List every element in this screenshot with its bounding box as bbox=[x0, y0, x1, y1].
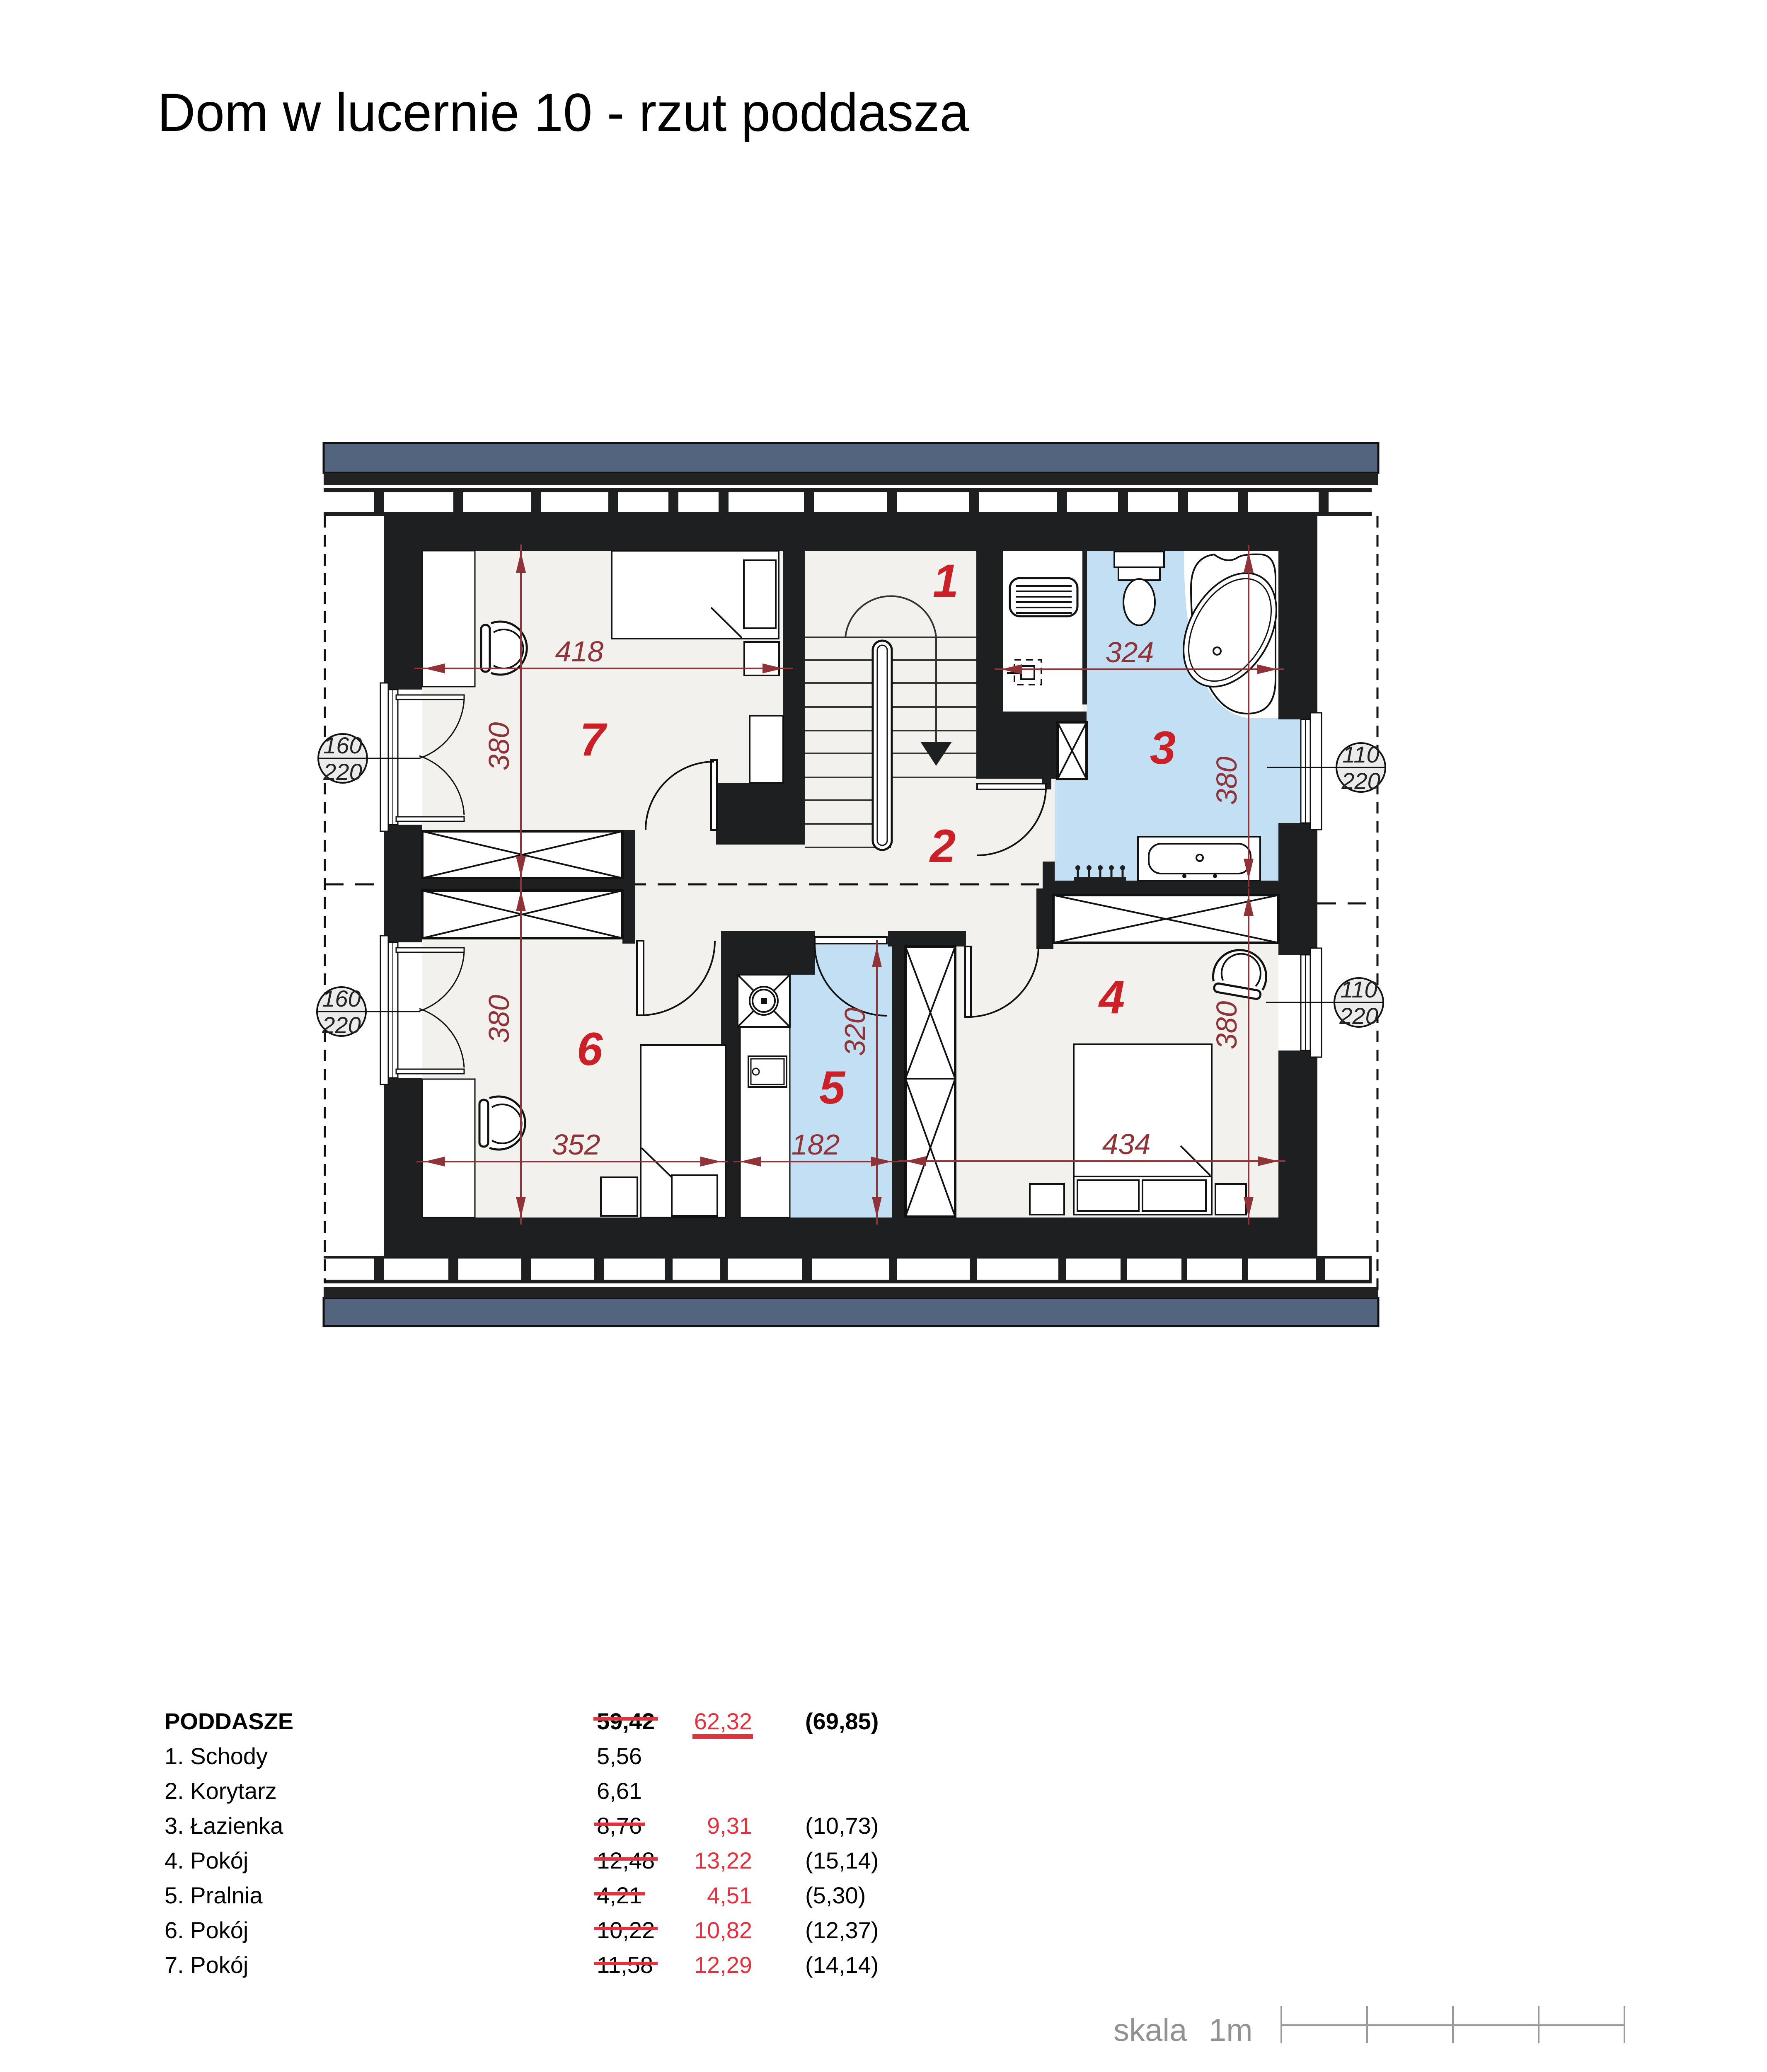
svg-text:6. Pokój: 6. Pokój bbox=[165, 1917, 248, 1943]
svg-text:13,22: 13,22 bbox=[694, 1847, 752, 1874]
svg-text:220: 220 bbox=[1339, 1003, 1378, 1029]
svg-text:3. Łazienka: 3. Łazienka bbox=[165, 1813, 283, 1839]
svg-text:380: 380 bbox=[483, 722, 515, 771]
svg-text:archon: archon bbox=[1241, 2057, 1650, 2072]
svg-text:110: 110 bbox=[1342, 741, 1379, 767]
svg-text:4,51: 4,51 bbox=[707, 1882, 752, 1908]
svg-text:2: 2 bbox=[929, 820, 956, 872]
svg-text:380: 380 bbox=[1210, 757, 1243, 805]
svg-text:(69,85): (69,85) bbox=[805, 1708, 879, 1734]
svg-text:1. Schody: 1. Schody bbox=[165, 1743, 268, 1769]
svg-text:220: 220 bbox=[1341, 768, 1380, 794]
svg-text:380: 380 bbox=[483, 995, 515, 1043]
svg-text:6,61: 6,61 bbox=[597, 1778, 642, 1804]
svg-text:324: 324 bbox=[1106, 636, 1154, 668]
svg-text:12,29: 12,29 bbox=[694, 1952, 752, 1978]
svg-text:62,32: 62,32 bbox=[694, 1708, 752, 1734]
svg-text:380: 380 bbox=[1210, 1001, 1243, 1050]
svg-text:10,82: 10,82 bbox=[694, 1917, 752, 1943]
svg-text:7. Pokój: 7. Pokój bbox=[165, 1952, 248, 1978]
svg-text:320: 320 bbox=[839, 1008, 871, 1056]
svg-text:5. Pralnia: 5. Pralnia bbox=[165, 1882, 263, 1908]
svg-text:9,31: 9,31 bbox=[707, 1813, 752, 1839]
svg-text:160: 160 bbox=[322, 985, 361, 1012]
svg-text:110: 110 bbox=[1340, 976, 1377, 1002]
svg-text:(15,14): (15,14) bbox=[805, 1847, 879, 1874]
svg-text:7: 7 bbox=[580, 714, 608, 765]
svg-text:1m: 1m bbox=[1209, 2013, 1253, 2048]
svg-text:4: 4 bbox=[1098, 971, 1125, 1023]
svg-text:220: 220 bbox=[323, 759, 362, 785]
svg-text:(10,73): (10,73) bbox=[805, 1813, 879, 1839]
svg-text:160: 160 bbox=[323, 732, 362, 758]
svg-text:59,42: 59,42 bbox=[597, 1708, 655, 1734]
svg-text:(12,37): (12,37) bbox=[805, 1917, 879, 1943]
svg-text:PODDASZE: PODDASZE bbox=[165, 1708, 293, 1734]
svg-text:220: 220 bbox=[322, 1012, 361, 1038]
svg-text:6: 6 bbox=[577, 1023, 603, 1075]
svg-text:182: 182 bbox=[792, 1128, 840, 1161]
svg-text:skala: skala bbox=[1113, 2013, 1187, 2048]
svg-text:2. Korytarz: 2. Korytarz bbox=[165, 1778, 277, 1804]
svg-text:434: 434 bbox=[1102, 1128, 1151, 1160]
svg-text:(5,30): (5,30) bbox=[805, 1882, 866, 1908]
svg-text:4. Pokój: 4. Pokój bbox=[165, 1847, 248, 1874]
svg-text:418: 418 bbox=[555, 635, 604, 668]
svg-text:352: 352 bbox=[552, 1128, 600, 1161]
svg-text:Dom w lucernie 10 - rzut podda: Dom w lucernie 10 - rzut poddasza bbox=[157, 82, 969, 143]
svg-text:3: 3 bbox=[1150, 722, 1176, 774]
svg-text:5,56: 5,56 bbox=[597, 1743, 642, 1769]
svg-text:(14,14): (14,14) bbox=[805, 1952, 879, 1978]
svg-text:1: 1 bbox=[933, 555, 959, 607]
svg-text:5: 5 bbox=[819, 1062, 846, 1113]
